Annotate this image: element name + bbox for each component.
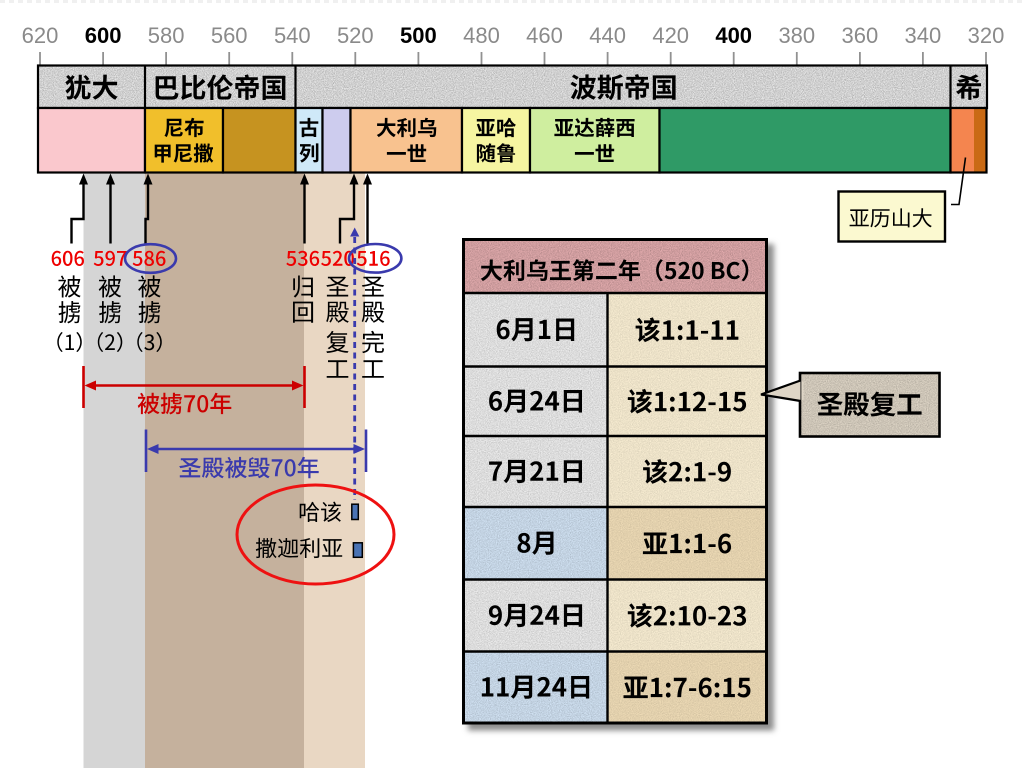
svg-text:620: 620	[22, 23, 59, 48]
svg-text:420: 420	[652, 23, 689, 48]
svg-text:400: 400	[715, 23, 752, 48]
svg-text:320: 320	[968, 23, 1005, 48]
svg-text:380: 380	[778, 23, 815, 48]
svg-text:560: 560	[211, 23, 248, 48]
svg-text:600: 600	[85, 23, 122, 48]
svg-text:500: 500	[400, 23, 437, 48]
svg-text:520: 520	[337, 23, 374, 48]
svg-text:580: 580	[148, 23, 185, 48]
svg-text:340: 340	[905, 23, 942, 48]
svg-text:440: 440	[589, 23, 626, 48]
svg-text:540: 540	[274, 23, 311, 48]
svg-text:460: 460	[526, 23, 563, 48]
svg-text:480: 480	[463, 23, 500, 48]
svg-text:360: 360	[842, 23, 879, 48]
